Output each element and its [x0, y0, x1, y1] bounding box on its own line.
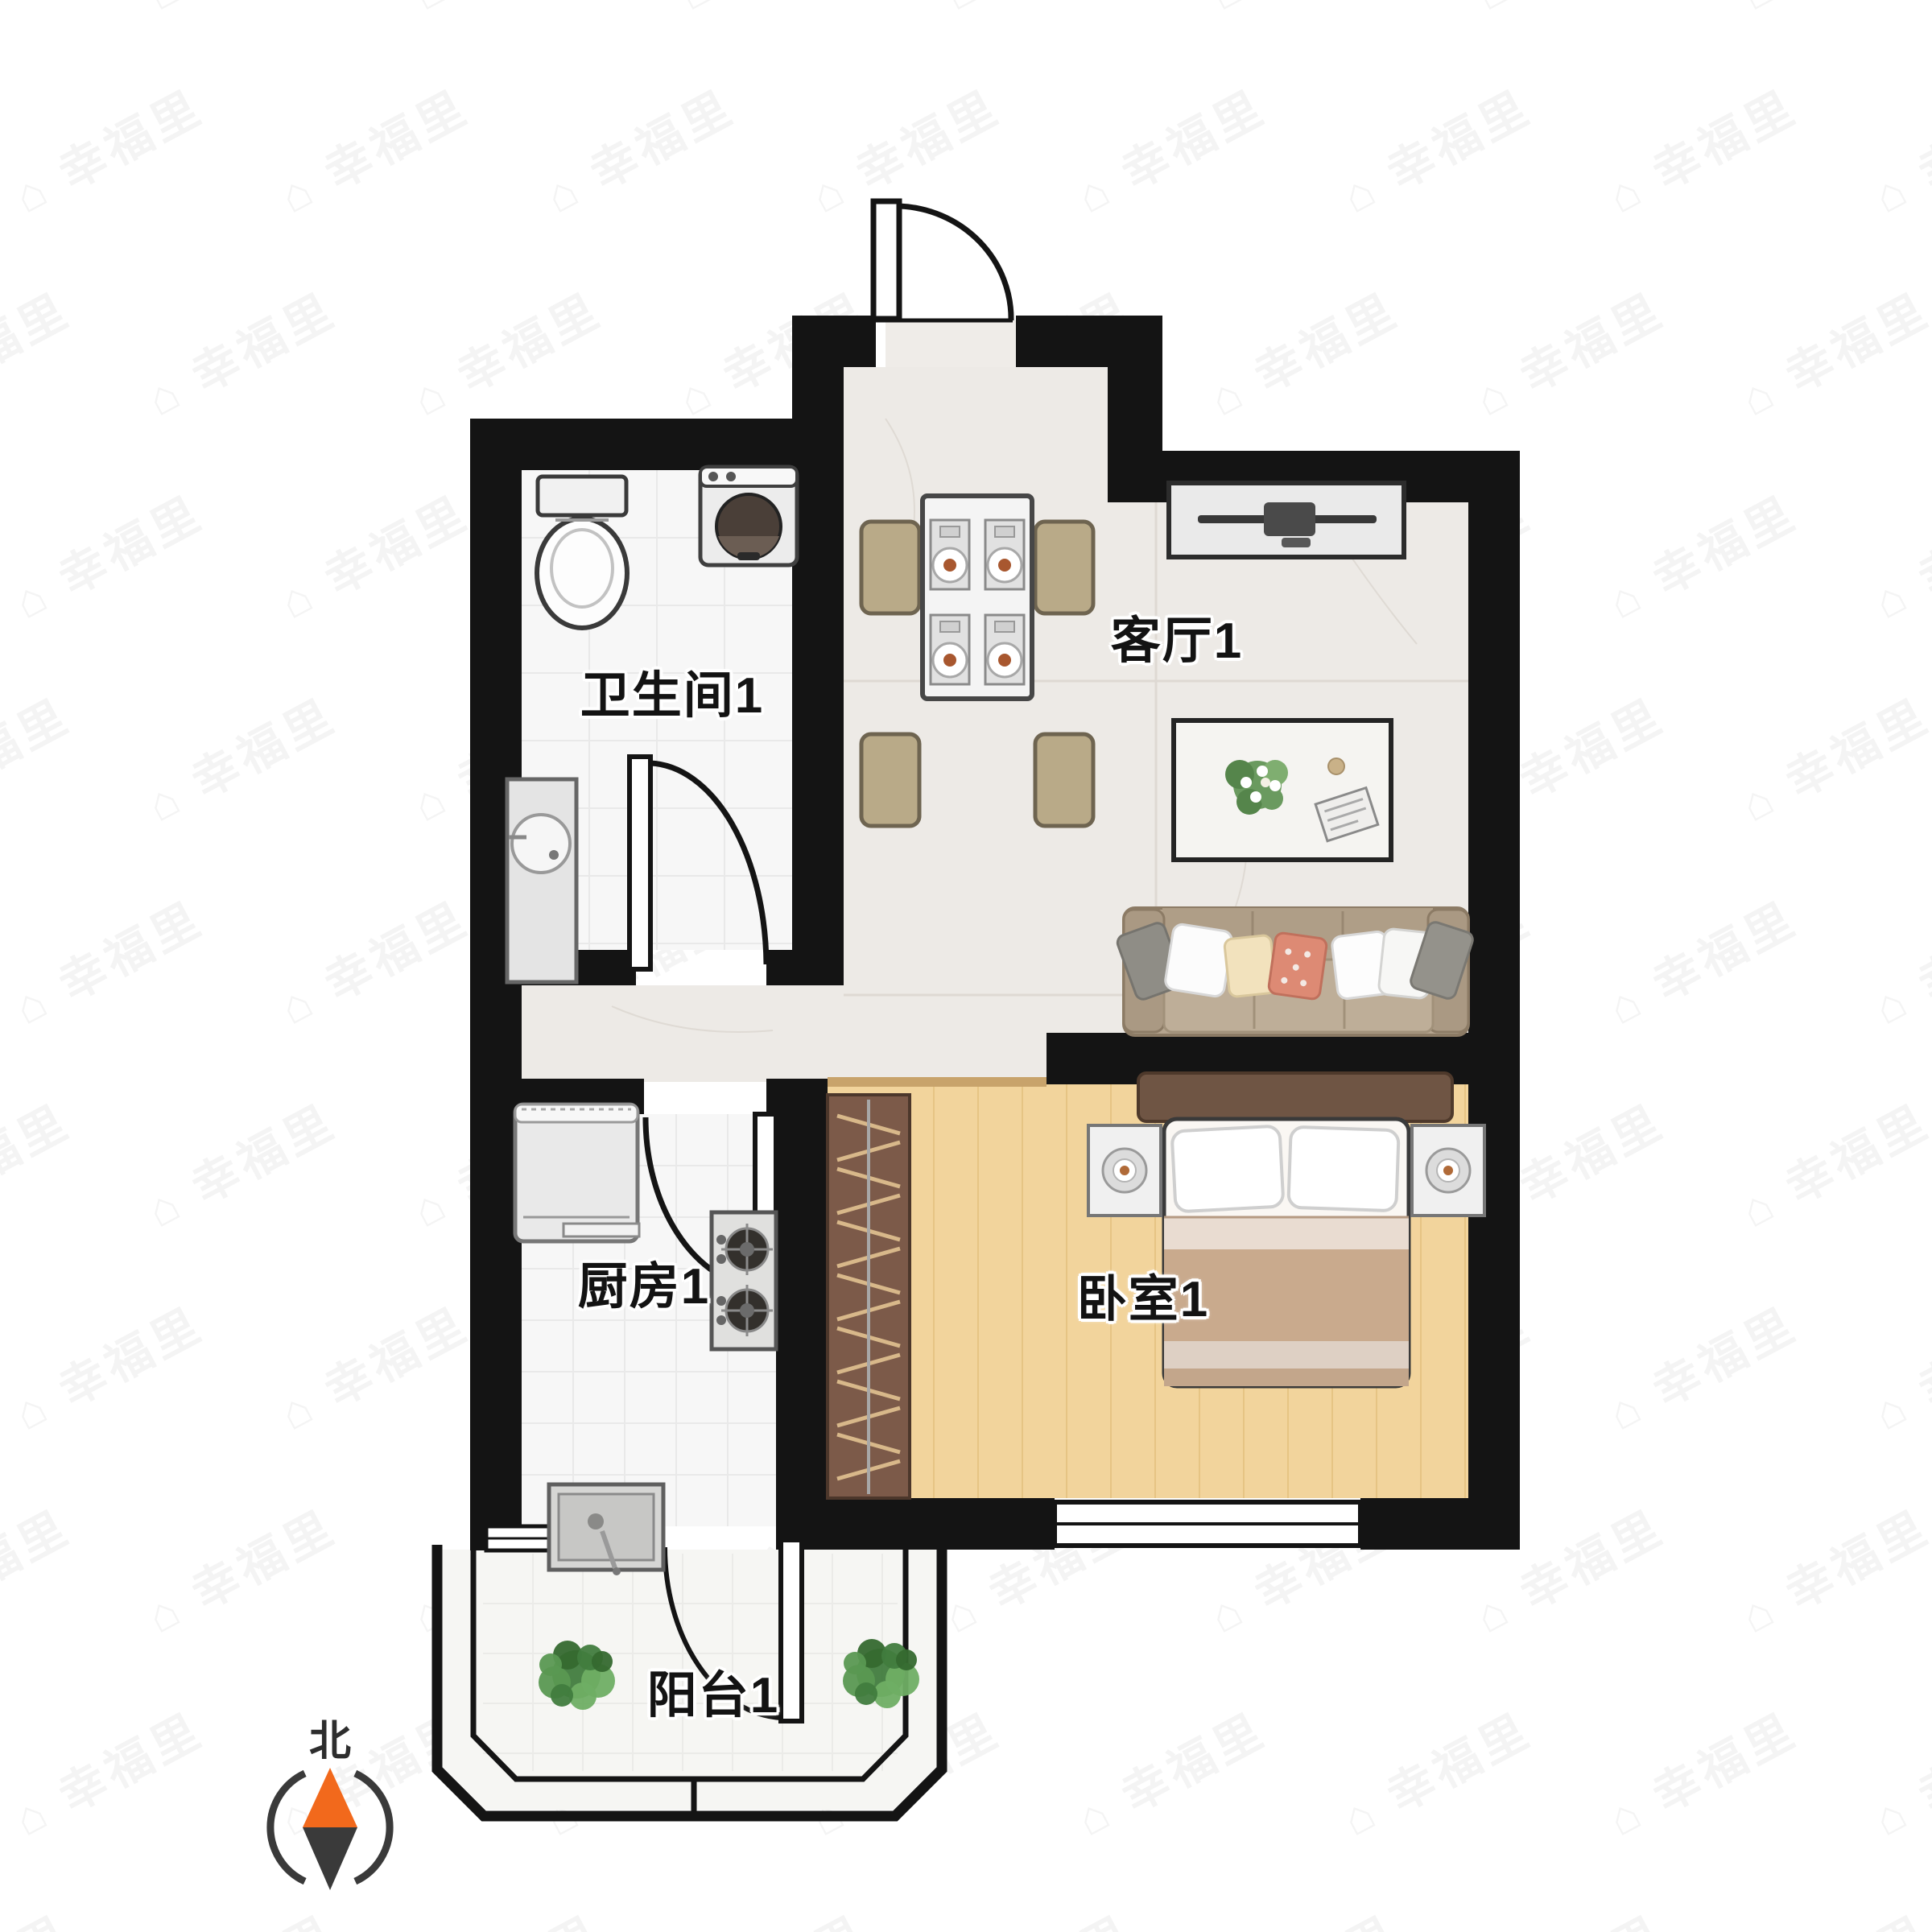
room-label-balcony: 阳台1 [647, 1654, 779, 1727]
floor-plan: ⌂ 幸福里⌂ 幸福里⌂ 幸福里⌂ 幸福里⌂ 幸福里⌂ 幸福里⌂ 幸福里⌂ 幸福里… [0, 0, 1932, 1932]
room-label-living: 客厅1 [1111, 600, 1243, 672]
room-labels: 北 卫生间1客厅1厨房1卧室1阳台1 [0, 0, 1932, 1932]
room-label-bedroom: 卧室1 [1077, 1258, 1209, 1331]
room-label-bathroom: 卫生间1 [580, 654, 764, 727]
room-label-kitchen: 厨房1 [578, 1245, 710, 1318]
compass-north-label: 北 [309, 1707, 351, 1768]
